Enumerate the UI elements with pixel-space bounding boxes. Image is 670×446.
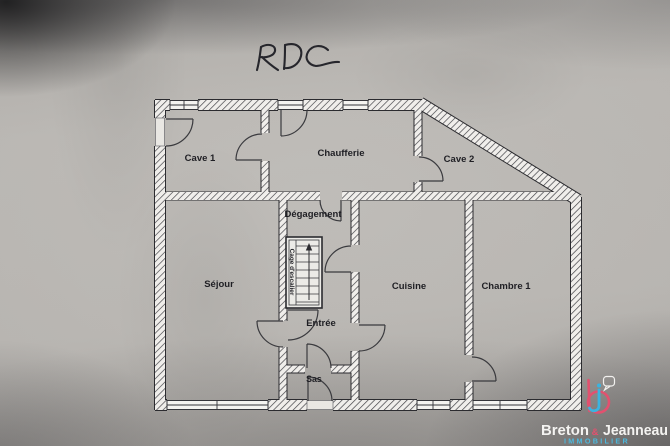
door-corridor-cuisine	[325, 246, 351, 272]
room-label-cave-2: Cave 2	[444, 154, 475, 165]
room-label-degagement: Dégagement	[284, 209, 342, 220]
room-label-chaufferie: Chaufferie	[318, 148, 365, 159]
room-label-cuisine: Cuisine	[392, 281, 426, 292]
staircase: Cage d'escalier	[286, 237, 322, 308]
door-entree-sas	[307, 344, 331, 368]
watermark-tagline: IMMOBILIER	[564, 439, 630, 446]
door-cave1-exterior	[166, 119, 193, 146]
door-cuisine-chambre1	[472, 357, 496, 381]
door-cave1-chaufferie	[236, 134, 262, 160]
room-label-chambre-1: Chambre 1	[481, 281, 531, 292]
door-cave2	[419, 157, 443, 181]
watermark-ampersand: &	[592, 427, 599, 438]
room-labels: Cave 1 Chaufferie Cave 2 Dégagement Séjo…	[185, 148, 532, 384]
door-chaufferie-top	[281, 110, 307, 136]
room-label-sas: Sas	[306, 374, 322, 384]
threshold-cave1	[156, 118, 165, 146]
walls-hatch	[155, 100, 581, 410]
room-label-entree: Entrée	[306, 318, 336, 329]
room-label-cave-1: Cave 1	[185, 153, 216, 164]
floor-label-text: RDC	[280, 70, 294, 76]
watermark-brand-first: Breton	[541, 423, 589, 439]
handwritten-floor-label	[257, 44, 339, 70]
watermark-brand-second: Jeanneau	[603, 423, 668, 439]
agency-logo-icon	[588, 377, 615, 413]
room-label-sejour: Séjour	[204, 279, 234, 290]
room-label-cage-escalier: Cage d'escalier	[288, 249, 295, 296]
door-sejour	[257, 321, 283, 347]
floor-plan: Cage d'escalier Cave 1 Chaufferie Cave 2…	[0, 0, 670, 446]
walls-outline	[155, 100, 581, 410]
door-entree-cuisine	[359, 325, 385, 351]
speech-bubble-icon	[604, 377, 615, 391]
threshold-sas-entry	[307, 401, 333, 410]
